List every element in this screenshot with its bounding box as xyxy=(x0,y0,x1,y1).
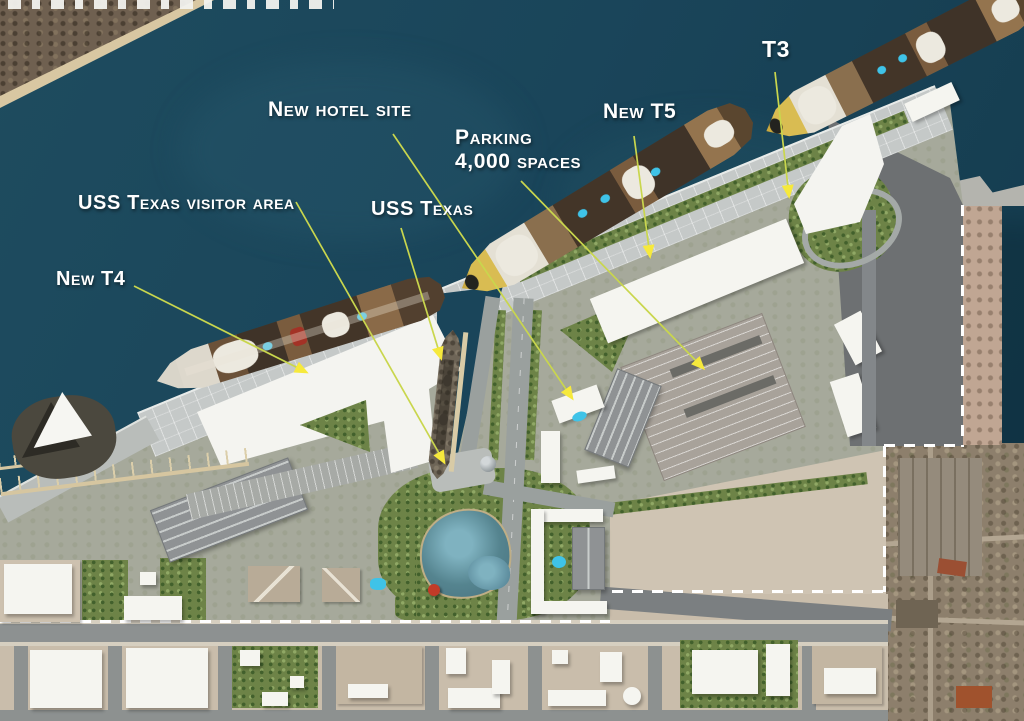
city-building xyxy=(692,650,758,694)
plan-boundary-dash xyxy=(612,590,886,593)
satellite-red-roof-building xyxy=(956,686,992,708)
label-parking: Parking 4,000 spaces xyxy=(455,126,581,174)
courtyard-pool xyxy=(552,556,566,568)
plan-boundary-dash xyxy=(961,205,964,447)
city-building xyxy=(492,660,510,694)
existing-jetty xyxy=(963,205,1002,445)
plan-boundary-dash xyxy=(0,620,610,623)
label-uss-texas: USS Texas xyxy=(371,198,473,221)
red-sculpture xyxy=(428,584,440,596)
retail-pool xyxy=(370,578,386,590)
plan-boundary-dash xyxy=(884,444,964,447)
city-building xyxy=(4,564,72,614)
city-building xyxy=(552,650,568,664)
city-building xyxy=(766,644,790,696)
city-building xyxy=(126,648,208,708)
plan-boundary-dash xyxy=(883,446,886,592)
label-new-t4: New T4 xyxy=(56,268,126,291)
label-uss-texas-visitor-area: USS Texas visitor area xyxy=(78,192,295,215)
parking-garage xyxy=(572,527,605,590)
label-new-hotel-site: New hotel site xyxy=(268,98,412,122)
globe-sculpture xyxy=(480,456,496,472)
cropped-title-fragment xyxy=(8,0,334,9)
city-building xyxy=(548,690,606,706)
satellite-building xyxy=(896,600,938,628)
retail-building xyxy=(322,568,360,602)
retail-building xyxy=(248,566,300,602)
city-building xyxy=(290,676,304,688)
tower-building xyxy=(541,431,560,483)
bottom-street xyxy=(0,710,888,721)
city-building xyxy=(262,692,288,706)
label-new-t5: New T5 xyxy=(603,100,676,124)
courtyard-building-bar xyxy=(531,601,607,614)
city-building xyxy=(824,668,876,694)
lagoon-pool xyxy=(468,556,510,590)
round-building xyxy=(623,687,641,705)
city-building xyxy=(348,684,388,698)
city-building xyxy=(240,650,260,666)
site-plan-map: New hotel site Parking 4,000 spaces New … xyxy=(0,0,1024,721)
boulevard-green xyxy=(82,560,128,622)
label-t3: T3 xyxy=(762,36,790,62)
city-building xyxy=(140,572,156,585)
courtyard-building-bar xyxy=(531,509,544,613)
city-building xyxy=(30,650,102,708)
city-building xyxy=(446,648,466,674)
city-building xyxy=(124,596,182,620)
city-building xyxy=(600,652,622,682)
